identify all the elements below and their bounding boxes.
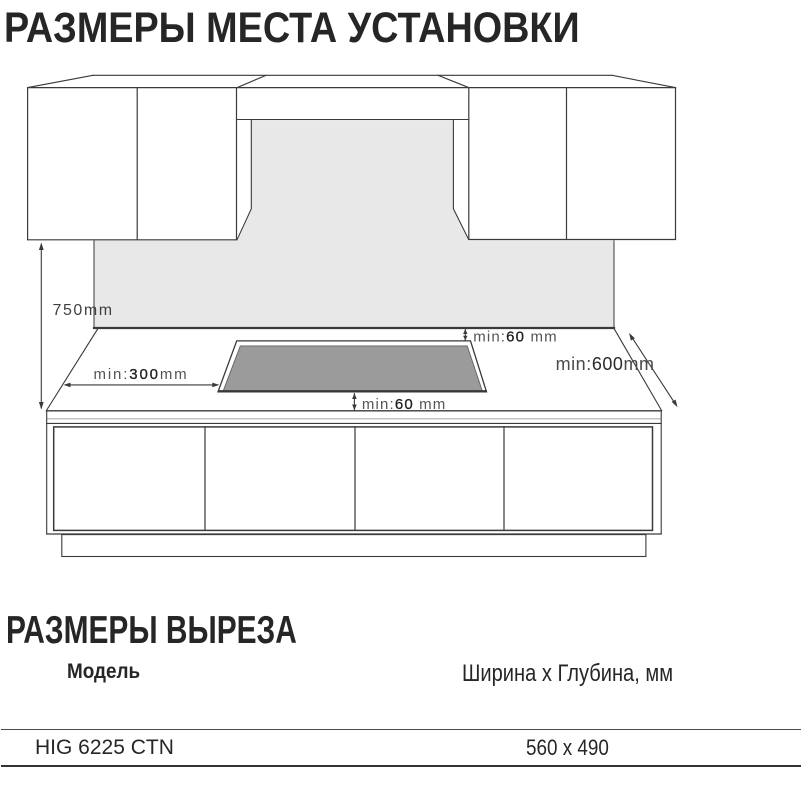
- svg-text:min:300mm: min:300mm: [94, 366, 189, 383]
- svg-text:750mm: 750mm: [53, 302, 114, 319]
- svg-text:min:60 mm: min:60 mm: [362, 396, 447, 413]
- svg-text:min:600mm: min:600mm: [556, 354, 655, 374]
- svg-text:min:60 mm: min:60 mm: [473, 329, 558, 346]
